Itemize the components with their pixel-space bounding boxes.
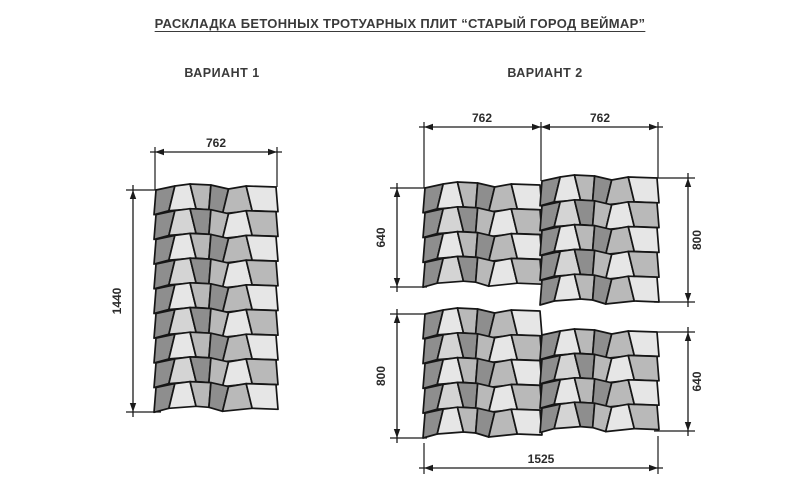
paving-tile: [246, 384, 278, 410]
v2-bottom-left: [423, 308, 542, 438]
paving-tile: [628, 227, 659, 253]
paving-tile: [511, 409, 542, 435]
paving-tile: [628, 355, 659, 380]
paving-tile: [511, 310, 542, 336]
paving-tile: [628, 331, 659, 356]
paving-tile: [628, 380, 659, 405]
v2-right-bottom-dimension: 640: [654, 327, 704, 436]
paving-tile: [511, 184, 542, 210]
paving-tile: [628, 276, 659, 302]
arrowhead: [424, 124, 433, 130]
arrowhead: [394, 188, 400, 197]
arrowhead: [685, 332, 691, 341]
arrowhead: [394, 314, 400, 323]
v2-top-width-dimensions: 762 762: [419, 111, 663, 188]
dimension-value: 1525: [528, 452, 555, 466]
paving-tile: [511, 335, 542, 361]
paving-tile: [511, 209, 542, 235]
arrowhead: [130, 403, 136, 412]
arrowhead: [685, 178, 691, 187]
paving-tile: [246, 285, 278, 311]
paving-tile: [511, 384, 542, 410]
arrowhead: [685, 422, 691, 431]
paving-tile: [628, 404, 659, 429]
v2-left-top-dimension: 640: [374, 183, 427, 292]
paving-tile: [511, 360, 542, 386]
paving-tile: [246, 186, 278, 212]
arrowhead: [649, 465, 658, 471]
v2-top-left: [423, 182, 542, 287]
dimension-value: 762: [206, 136, 226, 150]
arrowhead: [685, 293, 691, 302]
paving-tile: [628, 251, 659, 277]
v1-width-dimension: 762: [150, 136, 282, 190]
paving-tile: [246, 334, 278, 360]
arrowhead: [532, 124, 541, 130]
layout-drawing: 762 1440 762 762: [0, 0, 800, 496]
dimension-value: 762: [472, 111, 492, 125]
v2-right-top-dimension: 800: [654, 173, 704, 307]
v1-height-dimension: 1440: [110, 185, 161, 417]
dimension-value: 1440: [110, 287, 124, 314]
arrowhead: [541, 124, 550, 130]
paving-tile: [246, 260, 278, 286]
v2-bottom-right: [540, 329, 659, 433]
paving-tile: [628, 202, 659, 228]
paving-tile: [246, 235, 278, 261]
arrowhead: [649, 124, 658, 130]
dimension-value: 762: [590, 111, 610, 125]
paving-tile: [511, 258, 542, 284]
dimension-value: 800: [690, 230, 704, 250]
dimension-value: 640: [690, 371, 704, 391]
dimension-value: 640: [374, 227, 388, 247]
v1-block: [154, 184, 278, 412]
arrowhead: [130, 190, 136, 199]
paving-tile: [511, 234, 542, 260]
arrowhead: [394, 429, 400, 438]
dimension-value: 800: [374, 366, 388, 386]
arrowhead: [268, 149, 277, 155]
paving-blocks: [154, 175, 659, 438]
arrowhead: [394, 278, 400, 287]
v2-top-right: [540, 175, 659, 305]
v2-total-width-dimension: 1525: [419, 436, 663, 474]
arrowhead: [424, 465, 433, 471]
paving-tile: [246, 310, 278, 336]
arrowhead: [155, 149, 164, 155]
v2-left-bottom-dimension: 800: [374, 309, 427, 443]
paving-tile: [246, 211, 278, 237]
paving-tile: [628, 177, 659, 203]
paving-tile: [246, 359, 278, 385]
diagram-canvas: РАСКЛАДКА БЕТОННЫХ ТРОТУАРНЫХ ПЛИТ “СТАР…: [0, 0, 800, 496]
